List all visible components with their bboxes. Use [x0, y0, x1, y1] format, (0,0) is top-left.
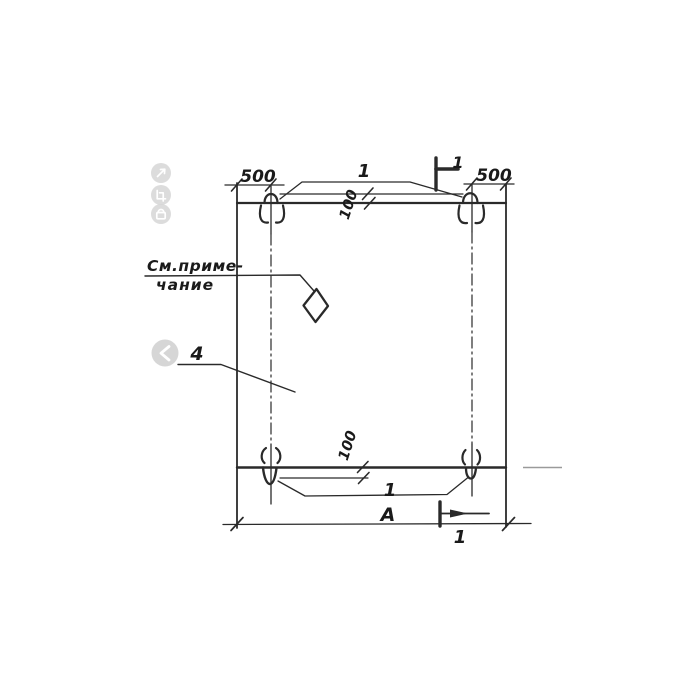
section-mark-bottom: 1: [440, 502, 489, 548]
icon-circle: [152, 340, 179, 367]
callout-bottom-loops: 1: [278, 478, 468, 502]
loop-body-left: [260, 206, 268, 223]
icon-circle: [151, 204, 171, 224]
dim-500-left-label: 500: [240, 167, 276, 187]
dim-100-bottom-label: 100: [336, 429, 361, 463]
lifting-loop-top-right: [458, 193, 484, 223]
lock-button[interactable]: [151, 204, 171, 224]
loop-axes: [271, 184, 472, 504]
dim-500-left: 500: [225, 167, 284, 191]
dim-100-top: 100: [280, 188, 463, 222]
loop-body-left: [458, 206, 467, 224]
loop-hidden-left: [462, 450, 465, 465]
loop-dome: [463, 193, 478, 203]
note-line2: чание: [156, 276, 214, 294]
note-line1: См.приме-: [147, 257, 244, 275]
loop-hidden-right: [276, 448, 280, 463]
icon-circle: [151, 185, 171, 205]
dim-500-right-label: 500: [476, 166, 512, 186]
dim-100-bottom: 100: [280, 429, 369, 484]
section-top-label: 1: [452, 153, 463, 172]
loop-body: [466, 468, 476, 479]
crop-button[interactable]: [151, 185, 171, 205]
dim-100-top-label: 100: [337, 188, 362, 222]
callout-leader: [278, 478, 468, 497]
loop-body-right: [276, 206, 284, 223]
loop-body: [263, 468, 277, 485]
callout-top-label: 1: [358, 161, 371, 182]
dim-width-A: А: [223, 504, 531, 531]
position-diamond: [304, 289, 329, 322]
previous-image-button[interactable]: [152, 340, 179, 367]
panel-outline: [237, 183, 562, 528]
callout-bottom-label: 1: [384, 480, 397, 501]
loop-hidden-left: [262, 448, 266, 463]
expand-button[interactable]: [151, 163, 171, 183]
dim-width-label: А: [379, 504, 396, 526]
section-bottom-label: 1: [454, 527, 467, 548]
loop-body-right: [476, 206, 485, 224]
lifting-loop-bottom-right: [462, 450, 480, 479]
section-arrowhead: [450, 510, 468, 518]
part-number-label: 4: [189, 343, 203, 365]
dimension-line: [223, 524, 531, 525]
technical-drawing: 500 500 1 100 1 См.приме- чание 4: [0, 0, 700, 700]
image-viewer: 500 500 1 100 1 См.приме- чание 4: [0, 0, 700, 700]
loop-hidden-right: [477, 450, 480, 465]
section-mark-top: 1: [436, 153, 464, 190]
